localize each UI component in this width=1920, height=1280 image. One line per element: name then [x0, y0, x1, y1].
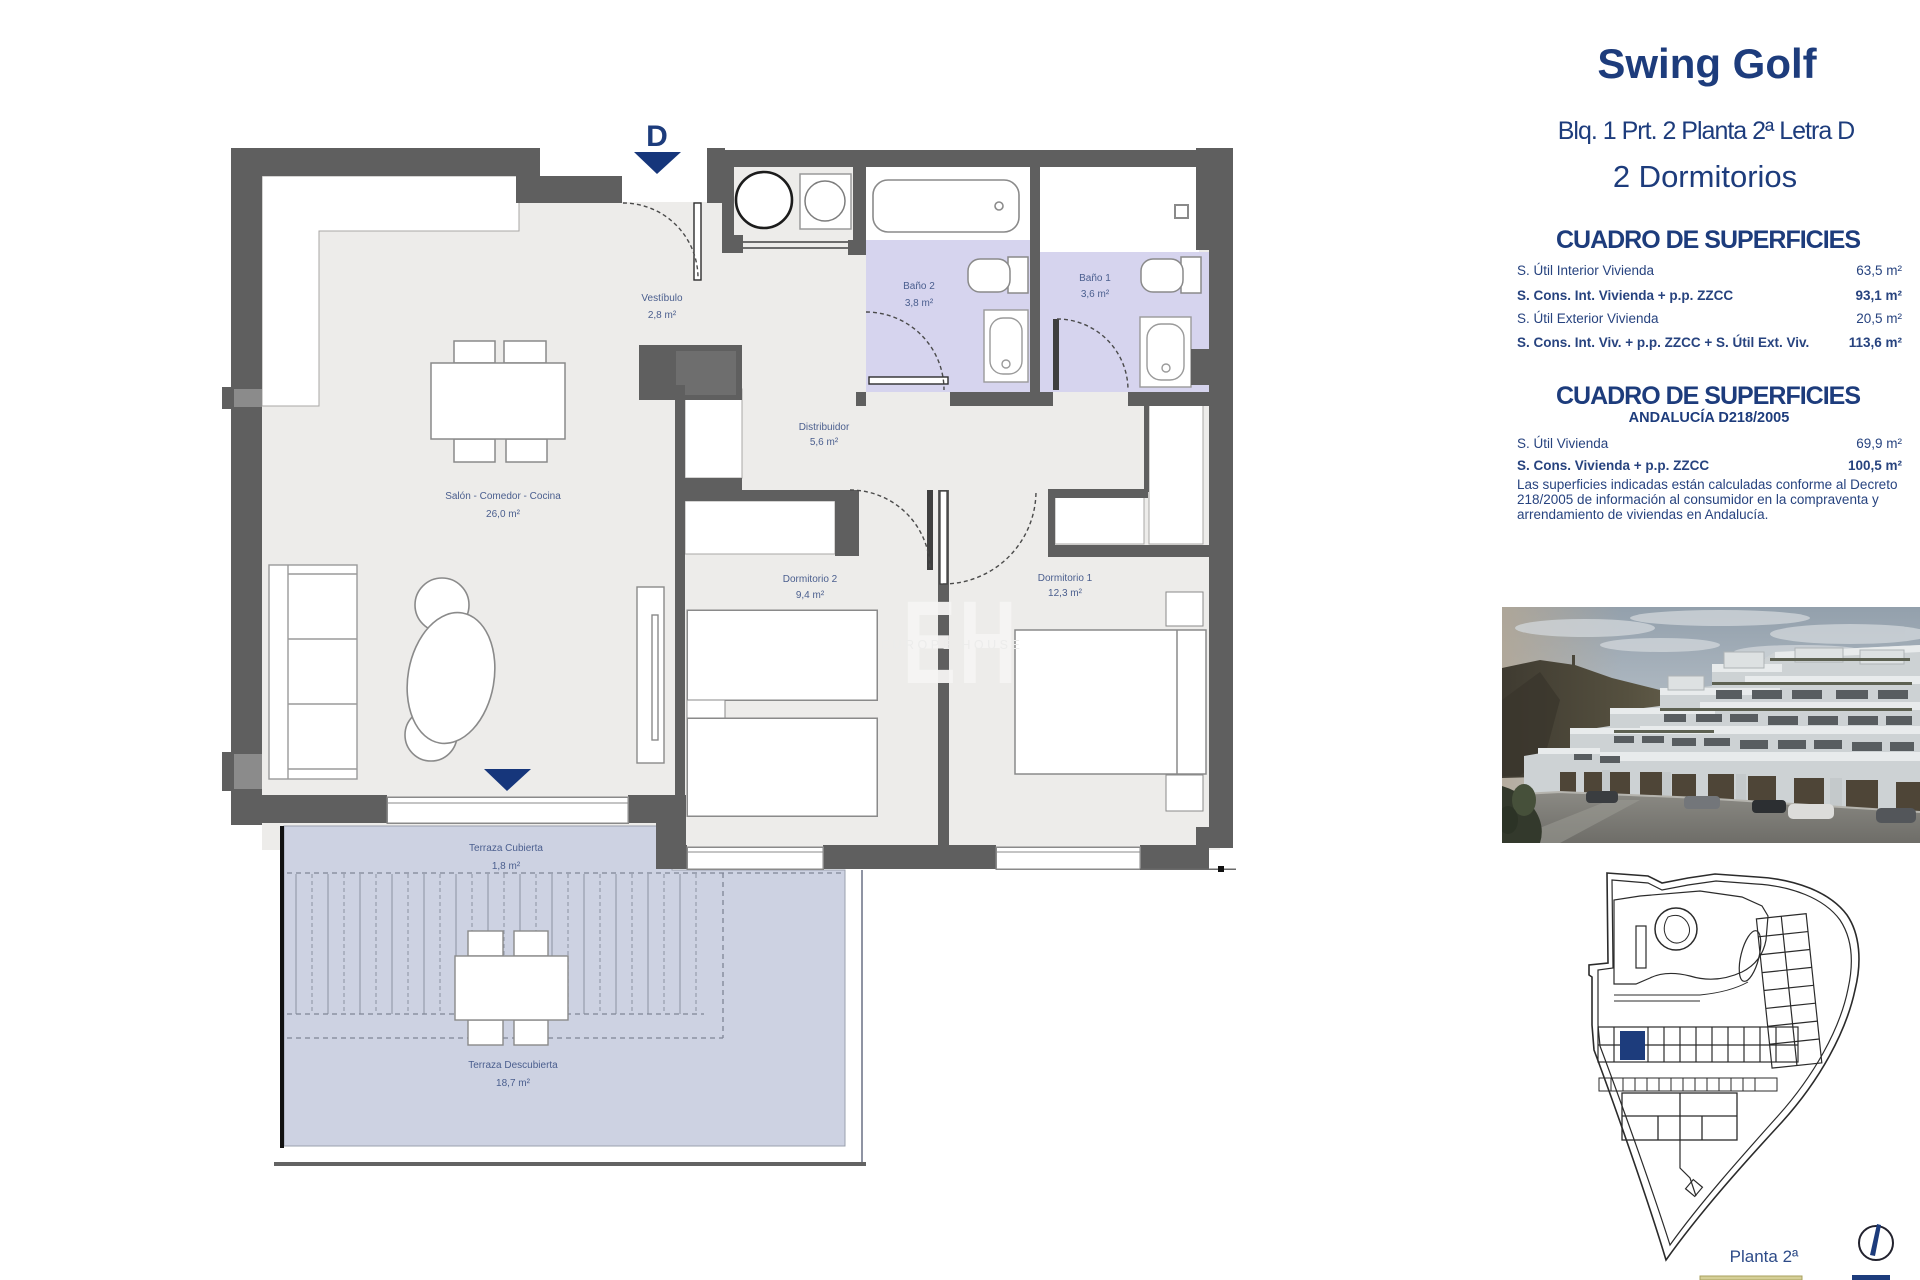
svg-text:63,5 m²: 63,5 m² — [1856, 263, 1902, 278]
svg-text:Swing Golf: Swing Golf — [1597, 40, 1817, 87]
svg-text:12,3 m²: 12,3 m² — [1048, 588, 1083, 599]
svg-text:Terraza Cubierta: Terraza Cubierta — [469, 843, 543, 854]
svg-text:EUROPE HOUSE: EUROPE HOUSE — [881, 638, 1024, 652]
svg-text:Terraza Descubierta: Terraza Descubierta — [468, 1060, 558, 1071]
svg-text:9,4 m²: 9,4 m² — [796, 590, 825, 601]
svg-text:93,1 m²: 93,1 m² — [1855, 288, 1902, 303]
svg-text:ANDALUCÍA D218/2005: ANDALUCÍA D218/2005 — [1629, 409, 1790, 426]
svg-text:Vestíbulo: Vestíbulo — [641, 293, 683, 304]
svg-text:Las superficies indicadas está: Las superficies indicadas están calculad… — [1517, 477, 1897, 492]
svg-text:Distribuidor: Distribuidor — [799, 422, 850, 433]
svg-text:218/2005 de información al con: 218/2005 de información al consumidor en… — [1517, 492, 1879, 507]
svg-text:S. Útil Interior Vivienda: S. Útil Interior Vivienda — [1517, 263, 1655, 278]
svg-text:arrendamiento de viviendas en: arrendamiento de viviendas en Andalucía. — [1517, 507, 1768, 522]
svg-text:3,8 m²: 3,8 m² — [905, 298, 934, 309]
svg-text:Blq. 1 Prt. 2 Planta 2ª Letra: Blq. 1 Prt. 2 Planta 2ª Letra D — [1558, 117, 1854, 145]
svg-text:Dormitorio 1: Dormitorio 1 — [1038, 573, 1093, 584]
svg-text:S. Cons. Int. Viv. + p.p. ZZCC: S. Cons. Int. Viv. + p.p. ZZCC + S. Útil… — [1517, 335, 1809, 350]
svg-text:3,6 m²: 3,6 m² — [1081, 289, 1110, 300]
svg-text:2 Dormitorios: 2 Dormitorios — [1613, 159, 1797, 194]
svg-text:Dormitorio 2: Dormitorio 2 — [783, 574, 838, 585]
svg-text:26,0 m²: 26,0 m² — [486, 509, 521, 520]
svg-text:CUADRO DE SUPERFICIES: CUADRO DE SUPERFICIES — [1556, 382, 1860, 410]
svg-text:1,8 m²: 1,8 m² — [492, 861, 521, 872]
svg-text:S. Útil Vivienda: S. Útil Vivienda — [1517, 436, 1609, 451]
svg-text:100,5 m²: 100,5 m² — [1848, 458, 1903, 473]
svg-text:113,6 m²: 113,6 m² — [1849, 335, 1903, 350]
svg-text:Baño 2: Baño 2 — [903, 281, 935, 292]
svg-text:S. Cons. Vivienda + p.p. ZZCC: S. Cons. Vivienda + p.p. ZZCC — [1517, 458, 1709, 473]
svg-text:D: D — [646, 120, 668, 153]
svg-text:CUADRO DE SUPERFICIES: CUADRO DE SUPERFICIES — [1556, 226, 1860, 254]
svg-text:69,9 m²: 69,9 m² — [1856, 436, 1902, 451]
svg-text:S. Cons. Int. Vivienda + p.p.: S. Cons. Int. Vivienda + p.p. ZZCC — [1517, 288, 1733, 303]
svg-text:S. Útil Exterior Vivienda: S. Útil Exterior Vivienda — [1517, 311, 1659, 326]
svg-text:18,7 m²: 18,7 m² — [496, 1078, 531, 1089]
svg-text:2,8 m²: 2,8 m² — [648, 310, 677, 321]
svg-text:20,5 m²: 20,5 m² — [1856, 311, 1902, 326]
svg-text:5,6 m²: 5,6 m² — [810, 437, 839, 448]
svg-text:Salón - Comedor - Cocina: Salón - Comedor - Cocina — [445, 491, 561, 502]
svg-text:Planta 2ª: Planta 2ª — [1730, 1247, 1799, 1266]
svg-text:Baño 1: Baño 1 — [1079, 273, 1111, 284]
